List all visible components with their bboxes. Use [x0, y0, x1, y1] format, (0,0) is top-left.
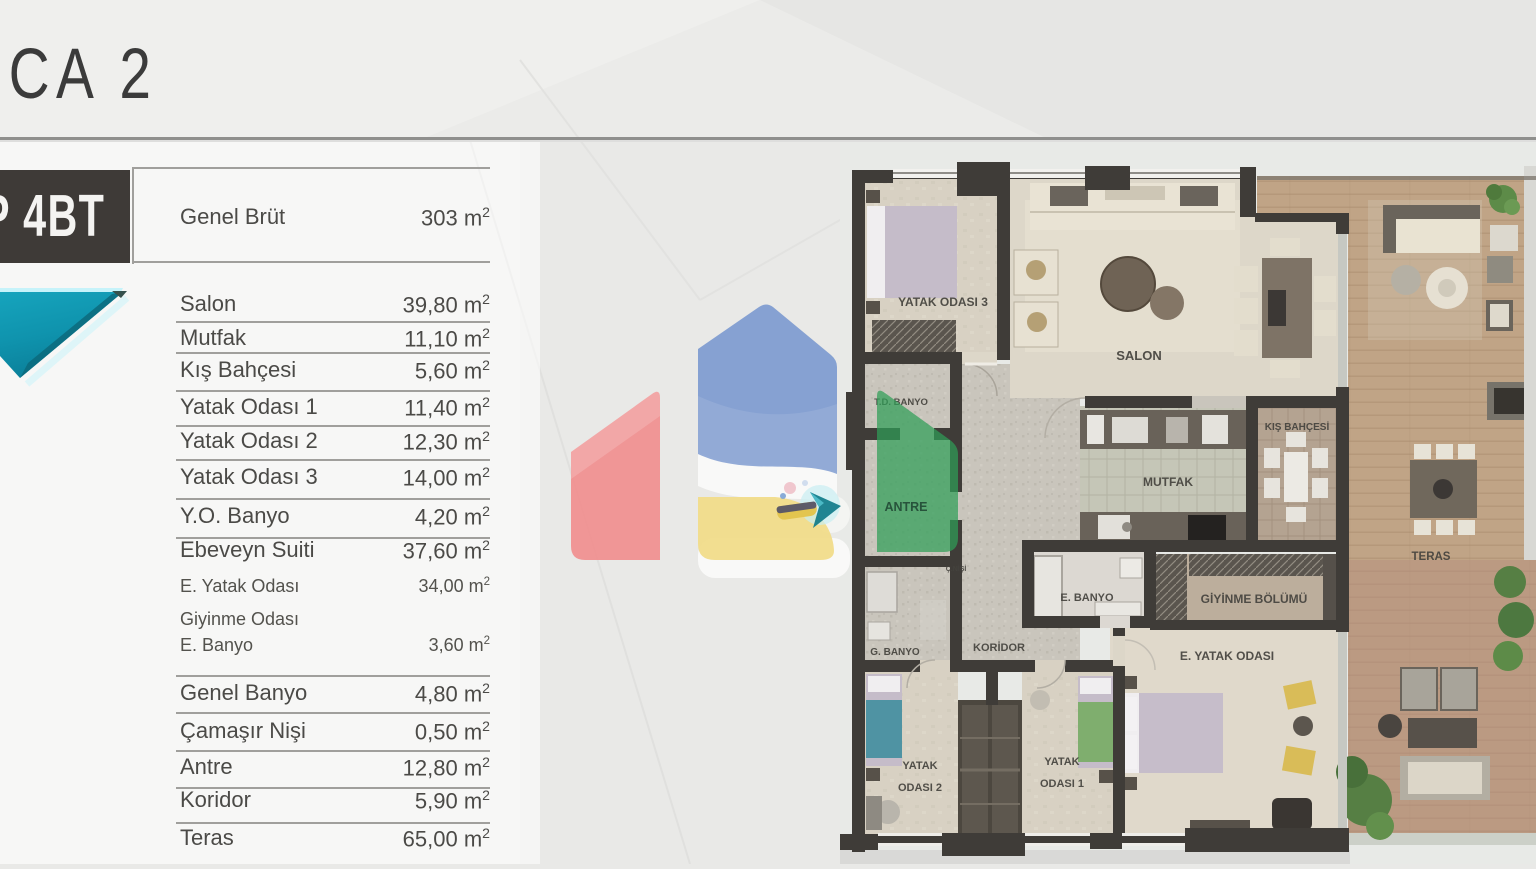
svg-text:ANTRE: ANTRE: [884, 500, 927, 514]
